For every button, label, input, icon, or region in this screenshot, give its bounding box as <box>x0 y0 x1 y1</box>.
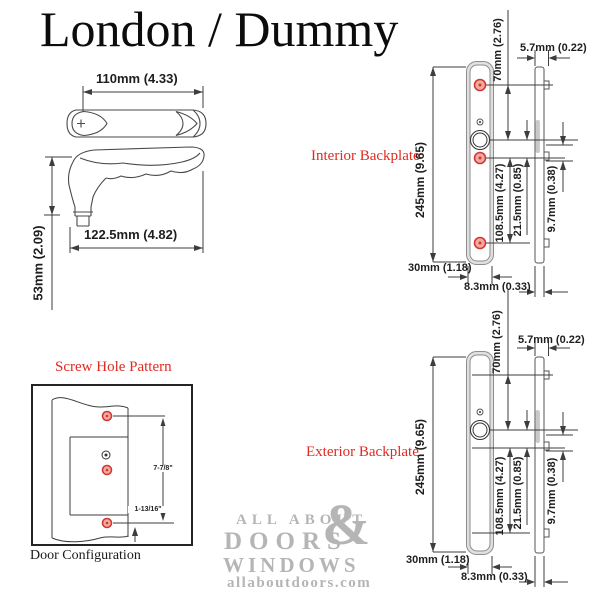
interior-cylinder-to-hole-dimension: 21.5mm (0.85) <box>512 164 524 237</box>
product-spec-sheet: London / Dummy 110mm (4.33) <box>0 0 600 600</box>
screw-span-dimension: 7-7/8" <box>147 465 179 472</box>
handle-height-dimension: 53mm (2.09) <box>31 225 46 300</box>
interior-profile-offset-dimension: 9.7mm (0.38) <box>546 166 558 233</box>
interior-plate-width-dimension: 30mm (1.18) <box>408 262 472 274</box>
watermark-line2: DOORS <box>224 528 348 556</box>
exterior-profile-offset-dimension: 9.7mm (0.38) <box>546 458 558 525</box>
exterior-backplate-label: Exterior Backplate <box>306 444 419 461</box>
side-profile <box>535 357 544 553</box>
exterior-cylinder-to-hole-dimension: 21.5mm (0.85) <box>512 457 524 530</box>
interior-backplate-label: Interior Backplate <box>311 148 420 165</box>
screw-hole-pattern-title: Screw Hole Pattern <box>55 359 172 376</box>
page-title: London / Dummy <box>40 2 398 57</box>
side-profile <box>535 67 544 263</box>
screw-bottom-dimension: 1-13/16" <box>128 506 168 513</box>
interior-hole-span-dimension: 108.5mm (4.27) <box>494 164 506 243</box>
exterior-height-dimension: 245mm (9.65) <box>413 419 427 495</box>
interior-height-dimension: 245mm (9.65) <box>413 142 427 218</box>
exterior-plate-width-dimension: 30mm (1.18) <box>406 554 470 566</box>
exterior-top-to-cylinder-dimension: 70mm (2.76) <box>491 310 503 374</box>
handle-top-view-drawing <box>55 66 215 144</box>
interior-profile-tab-dimension: 5.7mm (0.22) <box>520 42 587 54</box>
exterior-profile-tab-dimension: 5.7mm (0.22) <box>518 334 585 346</box>
door-configuration-caption: Door Configuration <box>30 548 141 564</box>
interior-top-to-cylinder-dimension: 70mm (2.76) <box>492 18 504 82</box>
handle-depth-dimension: 122.5mm (4.82) <box>84 227 177 242</box>
watermark-url: allaboutdoors.com <box>227 575 371 592</box>
exterior-hole-span-dimension: 108.5mm (4.27) <box>494 457 506 536</box>
exterior-profile-width-dimension: 8.3mm (0.33) <box>461 571 528 583</box>
